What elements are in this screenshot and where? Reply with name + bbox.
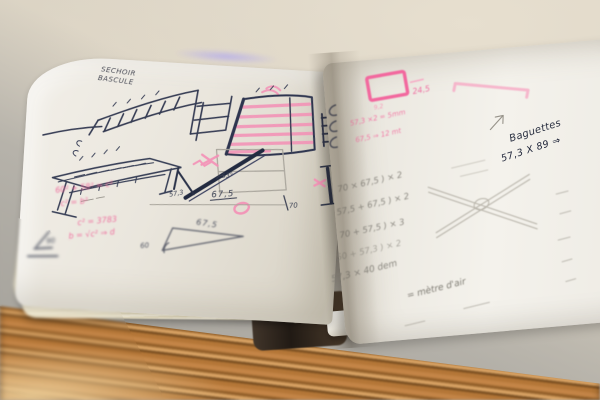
label-quad-width: 67,5 [196,218,219,230]
pink-measure-lines: 57,3 ×2 = 5mm 67,5 ⇒ 12 mt [349,108,409,145]
gutter-loop-scribbles [327,105,339,148]
rack-outline [226,81,333,160]
pink-stroke [453,77,528,103]
label-beam-angle: 53° [221,171,233,180]
pink-formula: b = √c² ⇒ d [68,227,116,240]
pink-line: 67,5 ⇒ 12 mt [355,127,402,145]
label-panel-height: 70 [289,201,299,210]
pink-rectangle-sketch: 24,5 9,2 [366,69,432,112]
pencil-stroke [428,174,537,238]
ink-heading-block: Baguettes 57,3 X 89 ⇒ [497,117,565,164]
perspective-rack-sketch [50,143,182,224]
ink-stroke [113,88,159,109]
pencil-stroke [451,160,488,177]
photo-open-sketchbook: SECHOIR BASCULE [0,0,600,400]
pencil-stroke [489,115,504,129]
pencil-calc: 70 + 57,5 ) × 3 [339,217,406,241]
label-beam-side: 57,3 [168,188,184,199]
pink-note: 9,2 [373,103,384,112]
pink-bracket [453,77,528,103]
pink-stroke [234,202,249,214]
ladder-rack-sketch [43,81,232,146]
pencil-stroke [554,191,577,282]
ink-stroke [73,150,78,156]
pencil-stroke [162,227,243,255]
pencil-calculations: 70 × 67,5 ) × 2 57,5 + 67,5 ) × 2 70 + 5… [322,165,469,307]
pink-formula-block: 60² + 58² = c² c² = b² c² = 3783 b = √c²… [51,176,120,244]
pink-stroke [262,86,280,95]
beam-panel-sketch: 53° 57,3 67,5 70 [150,142,341,220]
faint-margin-marks [395,191,580,326]
ink-stroke [77,141,82,147]
pink-formula: c² = 3783 [77,214,117,227]
label-beam-width: 67,5 [211,189,235,200]
pencil-calc: 57,5 + 67,5 ) × 2 [336,192,411,218]
label-quad-height: 60 [140,241,150,250]
pink-stroke [410,79,424,82]
pencil-calc: = mètre d'air [406,276,468,302]
pink-rect-label: 24,5 [412,84,431,96]
pink-hatched-rack-sketch [226,81,333,160]
right-page: 24,5 9,2 57,3 ×2 = 5mm 67,5 ⇒ 12 mt Bagu… [322,37,600,345]
margin-curl-marks [73,140,82,156]
right-page-notes: 24,5 9,2 57,3 ×2 = 5mm 67,5 ⇒ 12 mt Bagu… [322,37,600,345]
x-frame-pencil-sketch [426,156,537,238]
pink-formula: c² = b² [60,196,89,208]
pencil-calc: 70 × 67,5 ) × 2 [337,170,404,195]
pink-rect [366,71,407,100]
pink-hatch [227,84,315,158]
page-title: SECHOIR BASCULE [97,65,136,87]
ink-stroke [103,97,201,138]
pencil-stroke [404,302,491,325]
ink-stroke [256,83,287,94]
ink-stroke [327,105,339,148]
ink-stroke [43,117,102,139]
pink-scribbles [191,154,326,218]
ink-stroke [80,144,120,162]
pink-line: 57,3 ×2 = 5mm [349,108,406,128]
pencil-arrow [489,115,504,129]
pink-stroke [314,180,324,187]
triangle-quad-sketch: 67,5 60 [139,214,244,257]
